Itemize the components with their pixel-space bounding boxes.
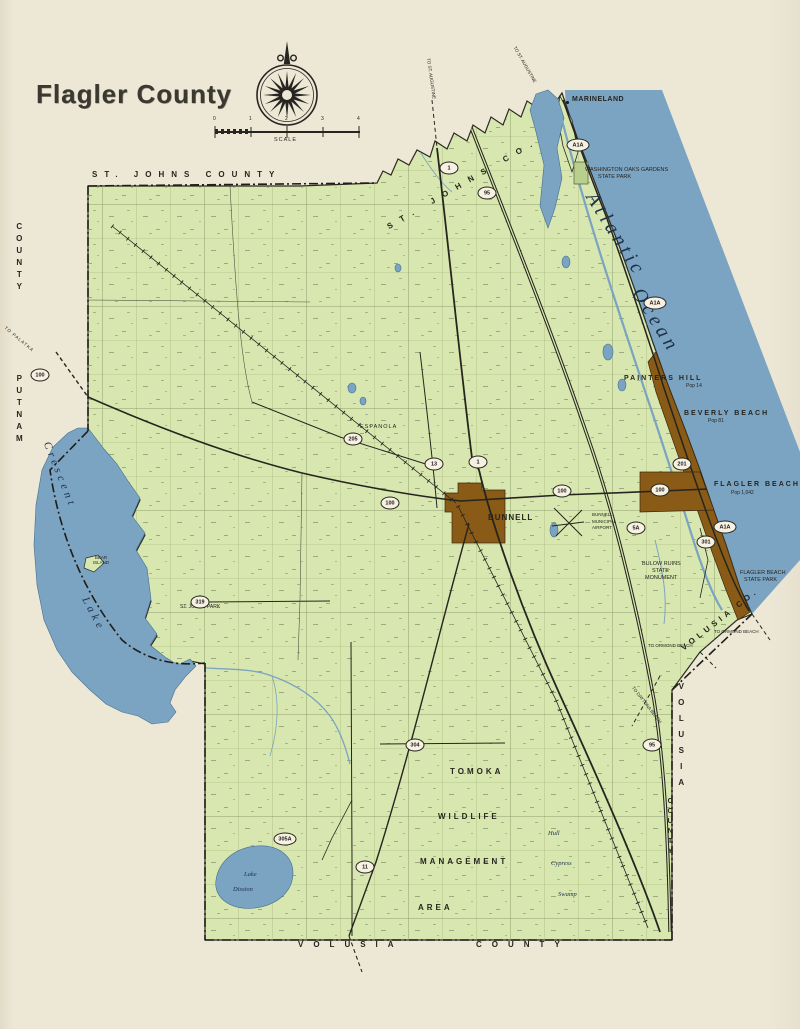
- city-label-flagler-beach: FLAGLER BEACH: [714, 481, 800, 489]
- swamp-label-swamp: Swamp: [558, 891, 577, 898]
- beverly-beach-population: Pop 81: [708, 419, 724, 425]
- route-shield-11: 11: [356, 861, 375, 874]
- flagler-beach-population: Pop 1,042: [731, 491, 754, 497]
- scale-tick-3: 3: [321, 117, 324, 123]
- park-label-washington-oaks-1: WASHINGTON OAKS GARDENS: [585, 167, 668, 173]
- route-shield-100-mid-east: 100: [553, 485, 572, 498]
- marineland-marker: [566, 101, 569, 104]
- area-label-tomoka-2: WILDLIFE: [438, 813, 500, 822]
- route-shield-304: 304: [406, 739, 425, 752]
- scale-tick-1: 1: [249, 117, 252, 123]
- scale-tick-0: 0: [213, 117, 216, 123]
- route-shield-95-south: 95: [643, 739, 662, 752]
- route-shield-13: 13: [425, 458, 444, 471]
- route-shield-205: 205: [344, 433, 363, 446]
- label-volusia-bottom-word1: VOLUSIA: [298, 941, 404, 950]
- city-label-painters-hill: PAINTERS HILL: [624, 375, 702, 383]
- direction-to-ormond-2: TO ORMOND BEACH: [714, 630, 759, 635]
- label-lake-disston-1: Lake: [244, 871, 257, 878]
- label-putnam-county-word2: COUNTY: [14, 222, 23, 294]
- park-label-bulow-2: STATE: [652, 568, 669, 574]
- scale-tick-2: 2: [285, 117, 288, 123]
- label-bear-island: BEAR ISLAND: [88, 556, 114, 566]
- route-shield-319: 319: [191, 596, 210, 609]
- label-st-johns-county-top: ST. JOHNS COUNTY: [92, 171, 281, 180]
- route-shield-305a: 305A: [274, 833, 297, 846]
- route-shield-a1a-south: A1A: [714, 521, 737, 534]
- route-shield-us1-bunnell: 1: [469, 456, 488, 469]
- park-label-bulow-1: BULOW RUINS: [642, 561, 681, 567]
- route-shield-100-mid-west: 100: [381, 497, 400, 510]
- route-shield-100-east: 100: [651, 484, 670, 497]
- label-putnam-county-word1: PUTNAM: [14, 374, 23, 446]
- label-volusia-right-word2: COUNTY: [666, 798, 674, 858]
- park-label-washington-oaks-2: STATE PARK: [598, 174, 631, 180]
- area-label-tomoka-3: MANAGEMENT: [420, 858, 508, 867]
- compass-north-spike: [284, 41, 290, 64]
- route-shield-a1a-mid: A1A: [644, 297, 667, 310]
- area-label-tomoka-4: AREA: [418, 904, 453, 913]
- label-lake-disston-2: Disston: [233, 886, 253, 893]
- map-canvas: Flagler County 0 1 2 3 4 SCALE ST. JOHNS…: [0, 0, 800, 1029]
- airport-label-2: MUNICIPAL: [592, 520, 616, 525]
- painters-hill-population: Pop 14: [686, 384, 702, 390]
- map-title: Flagler County: [36, 80, 232, 109]
- park-label-flagler-beach-sp-1: FLAGLER BEACH: [740, 570, 786, 576]
- route-shield-301: 301: [697, 536, 716, 549]
- route-shield-us1-north: 1: [440, 162, 459, 175]
- swamp-label-cypress: Cypress: [551, 860, 572, 867]
- route-shield-a1a-north: A1A: [567, 139, 590, 152]
- airport-label-1: BUNNELL: [592, 513, 613, 518]
- label-volusia-right-word1: VOLUSIA: [676, 682, 685, 794]
- park-label-bulow-3: MONUMENT: [645, 575, 677, 581]
- scale-label: SCALE: [274, 137, 297, 143]
- swamp-label-hull: Hull: [548, 830, 560, 837]
- route-shield-201: 201: [673, 458, 692, 471]
- route-shield-95-north: 95: [478, 187, 497, 200]
- label-volusia-bottom-word2: COUNTY: [476, 941, 570, 950]
- city-label-marineland: MARINELAND: [572, 96, 624, 104]
- route-shield-100-west: 100: [31, 369, 50, 382]
- compass-rose-icon: [257, 41, 317, 125]
- city-label-beverly-beach: BEVERLY BEACH: [684, 410, 769, 418]
- route-shield-5a: 5A: [627, 522, 646, 535]
- city-label-bunnell: BUNNELL: [488, 514, 533, 523]
- direction-to-ormond-1: TO ORMOND BEACH: [648, 644, 693, 649]
- scale-tick-4: 4: [357, 117, 360, 123]
- park-label-flagler-beach-sp-2: STATE PARK: [744, 577, 777, 583]
- city-label-espanola: ESPANOLA: [360, 424, 397, 430]
- airport-label-3: AIRPORT: [592, 526, 612, 531]
- map-geometry: [0, 0, 800, 1029]
- area-label-tomoka-1: TOMOKA: [450, 768, 503, 777]
